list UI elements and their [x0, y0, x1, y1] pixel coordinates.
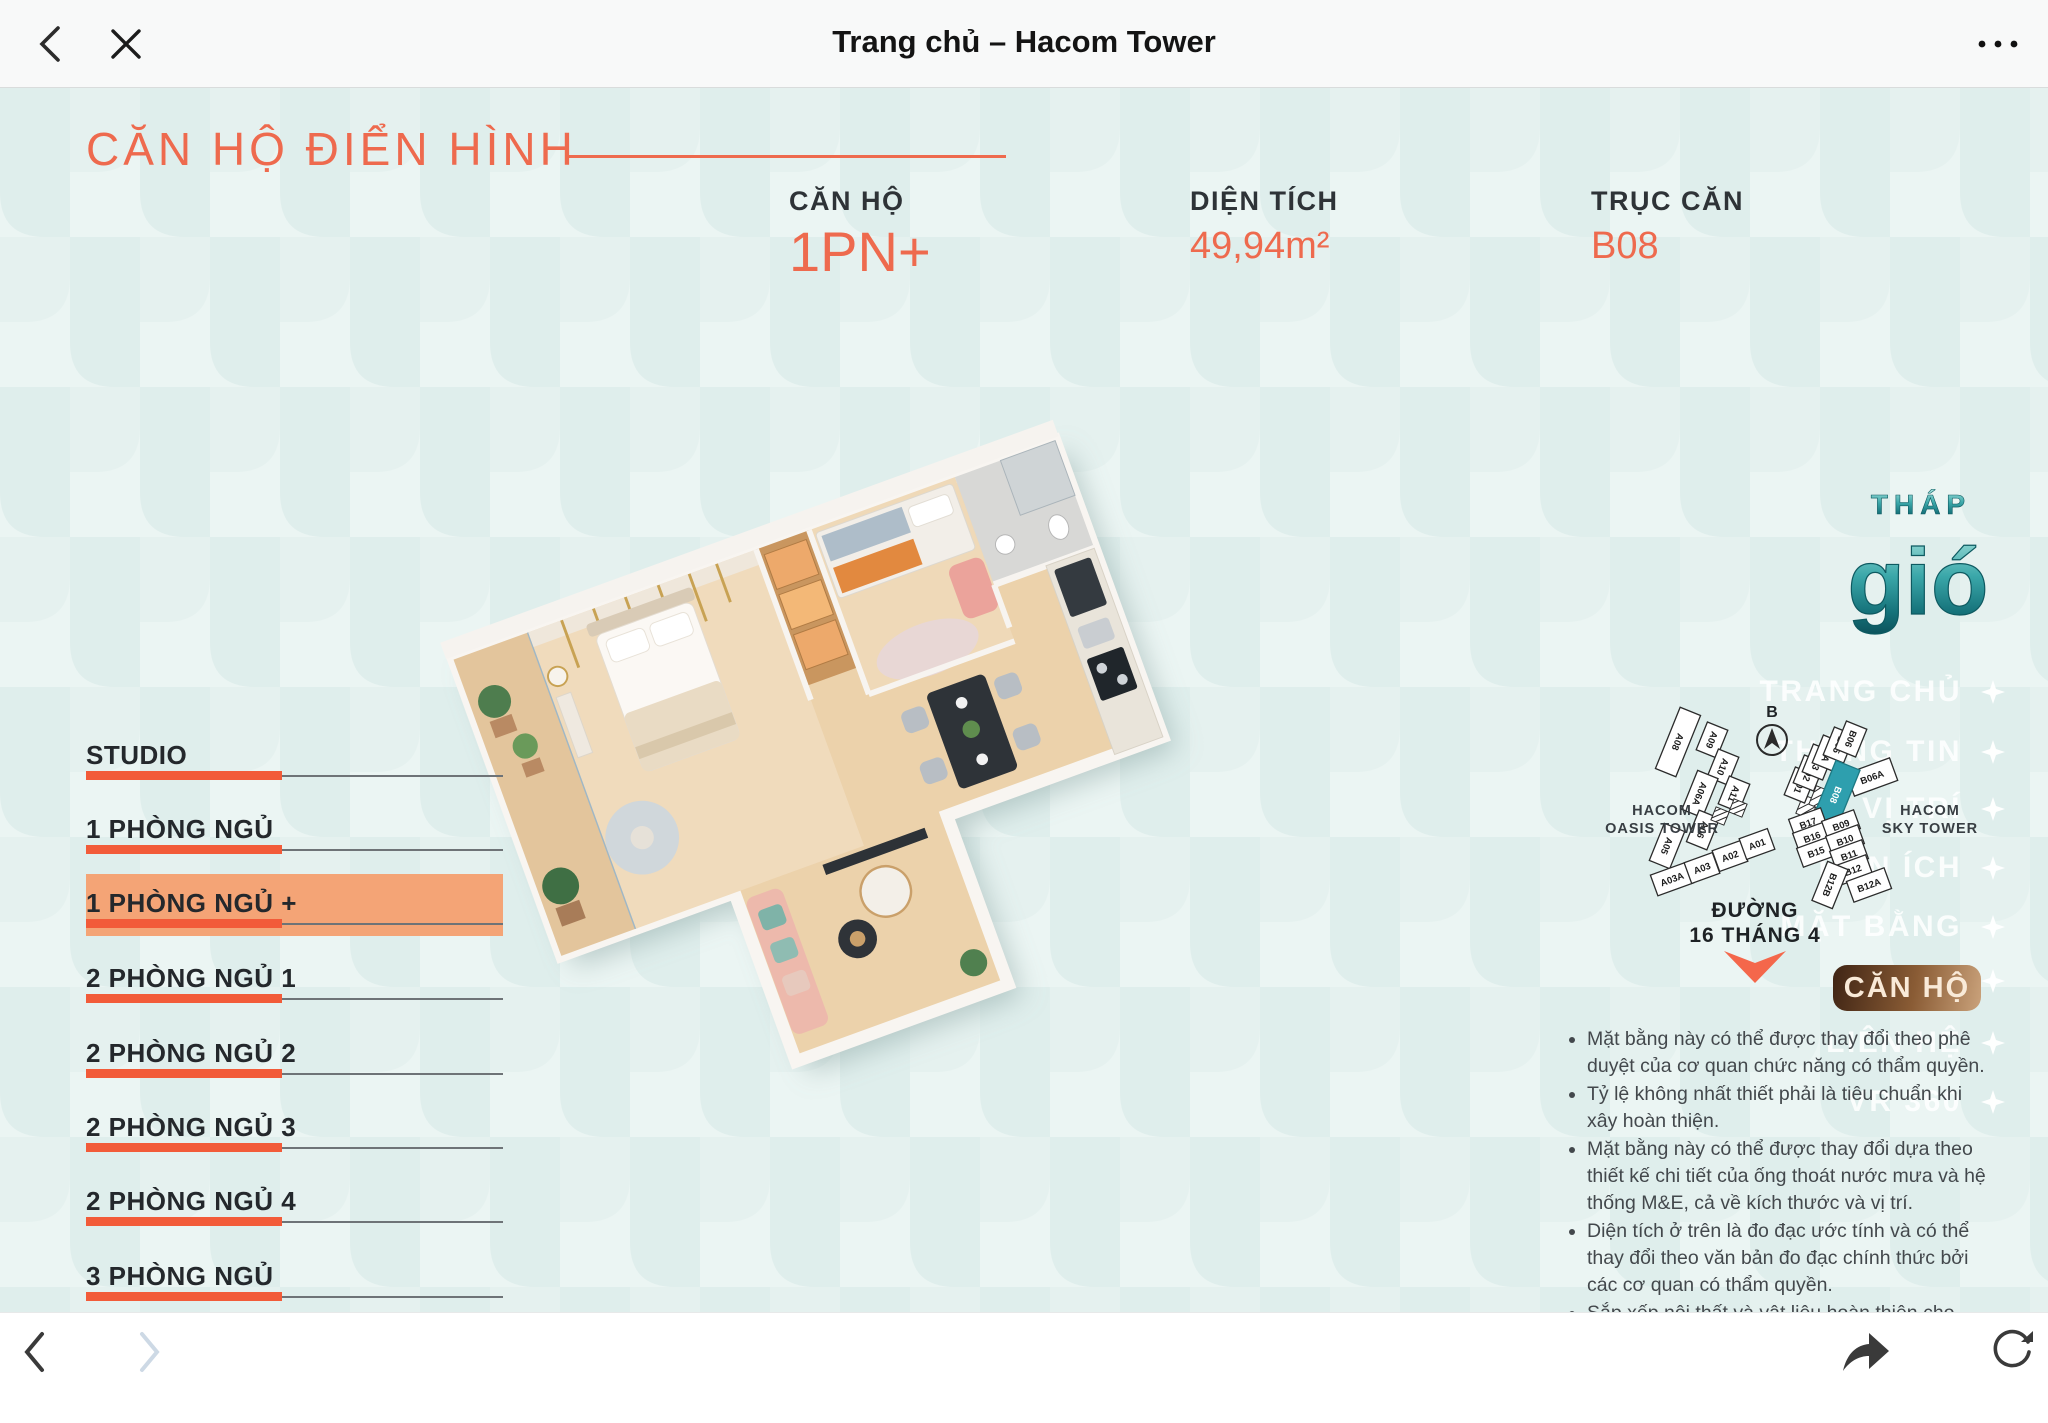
reload-icon[interactable]	[1984, 1313, 2040, 1391]
disclaimer-item: Sắp xếp nội thất và vật liệu hoàn thiện …	[1587, 1300, 1987, 1312]
sidebar-item-can-ho-button[interactable]: CĂN HỘ	[1833, 965, 1981, 1011]
browser-titlebar: Trang chủ – Hacom Tower	[0, 0, 2048, 88]
spec-label: TRỤC CĂN	[1591, 186, 1744, 217]
menu-underline	[86, 845, 503, 854]
disclaimer-item: Mặt bằng này có thể được thay đổi theo p…	[1587, 1026, 1987, 1080]
menu-item-2pn2[interactable]: 2 PHÒNG NGỦ 2	[86, 1038, 503, 1078]
more-menu-icon[interactable]	[1968, 0, 2028, 87]
menu-item-studio[interactable]: STUDIO	[86, 740, 503, 780]
menu-item-2pn4[interactable]: 2 PHÒNG NGỦ 4	[86, 1186, 503, 1226]
spec-label: CĂN HỘ	[789, 186, 931, 217]
menu-underline	[86, 1069, 503, 1078]
sky-tower-name2: SKY TOWER	[1882, 821, 1978, 837]
browser-toolbar	[0, 1312, 2048, 1423]
disclaimer-item: Mặt bằng này có thể được thay đổi dựa th…	[1587, 1136, 1987, 1217]
menu-underline	[86, 1143, 503, 1152]
logo-main-text: gió	[1848, 529, 1989, 634]
menu-item-1pn-plus-selected[interactable]: 1 PHÒNG NGỦ +	[86, 874, 503, 936]
menu-item-label: 1 PHÒNG NGỦ	[86, 814, 503, 844]
spec-dien-tich: DIỆN TÍCH 49,94m²	[1190, 186, 1339, 268]
thap-gio-logo: THÁP gió	[1843, 474, 1993, 649]
compass-label: B	[1766, 704, 1778, 721]
toolbar-forward-icon	[130, 1313, 170, 1391]
share-icon[interactable]	[1836, 1313, 1896, 1391]
street-label-line1: ĐƯỜNG	[1711, 898, 1798, 922]
spec-value: 1PN+	[789, 219, 931, 284]
street-arrow-icon	[1724, 951, 1786, 983]
disclaimer-item: Diện tích ở trên là đo đạc ước tính và c…	[1587, 1218, 1987, 1299]
menu-underline	[86, 919, 503, 928]
street-label-line2: 16 THÁNG 4	[1689, 924, 1820, 947]
logo-top-text: THÁP	[1871, 489, 1971, 520]
menu-item-2pn1[interactable]: 2 PHÒNG NGỦ 1	[86, 963, 503, 1003]
disclaimer-list: Mặt bằng này có thể được thay đổi theo p…	[1563, 1026, 1987, 1312]
oasis-tower-name: HACOM	[1632, 803, 1692, 819]
sky-tower-name: HACOM	[1900, 803, 1960, 819]
menu-item-label: 3 PHÒNG NGỦ	[86, 1261, 503, 1291]
menu-underline	[86, 994, 503, 1003]
spec-value: B08	[1591, 225, 1744, 268]
unit-chip[interactable]: A01	[1739, 829, 1775, 860]
menu-item-label: 1 PHÒNG NGỦ +	[86, 888, 503, 918]
section-title-rule	[568, 155, 1006, 158]
spec-value: 49,94m²	[1190, 225, 1339, 268]
menu-item-label: 2 PHÒNG NGỦ 4	[86, 1186, 503, 1216]
menu-item-label: 2 PHÒNG NGỦ 2	[86, 1038, 503, 1068]
menu-item-label: 2 PHÒNG NGỦ 3	[86, 1112, 503, 1142]
floor-plan-rendering	[398, 330, 1278, 1195]
menu-underline	[86, 1217, 503, 1226]
page-title: Trang chủ – Hacom Tower	[0, 24, 2048, 60]
toolbar-back-icon[interactable]	[14, 1313, 54, 1391]
menu-item-1pn[interactable]: 1 PHÒNG NGỦ	[86, 814, 503, 854]
menu-underline	[86, 771, 503, 780]
menu-item-label: 2 PHÒNG NGỦ 1	[86, 963, 503, 993]
menu-underline	[86, 1292, 503, 1301]
app-root: Trang chủ – Hacom Tower CĂN HỘ ĐIỂN HÌNH…	[0, 0, 2048, 1423]
section-title: CĂN HỘ ĐIỂN HÌNH	[86, 122, 577, 176]
disclaimer-item: Tỷ lệ không nhất thiết phải là tiêu chuẩ…	[1587, 1081, 1987, 1135]
menu-item-3pn[interactable]: 3 PHÒNG NGỦ	[86, 1261, 503, 1301]
spec-can-ho: CĂN HỘ 1PN+	[789, 186, 931, 284]
site-minimap: B A08 A09 A10 A11 A06A A06 A05 A03A A03 …	[1560, 695, 1990, 1000]
north-arrow-icon	[1764, 728, 1780, 749]
oasis-tower-name2: OASIS TOWER	[1605, 821, 1719, 837]
unit-chip[interactable]: A08	[1655, 707, 1700, 776]
four-point-star-icon	[1980, 968, 2006, 994]
spec-label: DIỆN TÍCH	[1190, 186, 1339, 217]
menu-item-label: STUDIO	[86, 740, 503, 770]
menu-item-2pn3[interactable]: 2 PHÒNG NGỦ 3	[86, 1112, 503, 1152]
spec-truc-can: TRỤC CĂN B08	[1591, 186, 1744, 268]
